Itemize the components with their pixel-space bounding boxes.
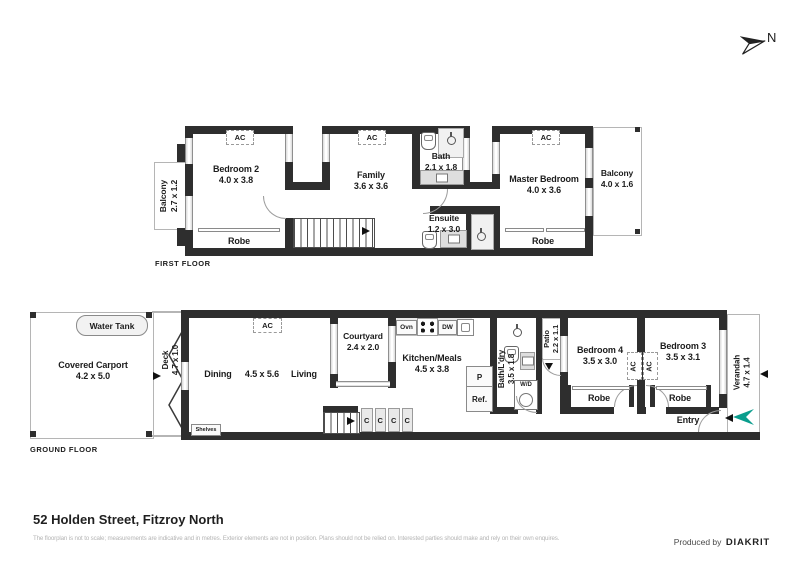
- shower-icon: [476, 228, 486, 240]
- cupboard: C: [402, 408, 414, 432]
- room-dims: 2.7 x 1.2: [169, 163, 180, 229]
- deck-edge: [152, 435, 181, 437]
- post: [30, 312, 36, 318]
- room-name: Kitchen/Meals: [394, 353, 470, 364]
- robe-sliding-door: [656, 386, 707, 390]
- wall: [185, 248, 593, 256]
- water-tank: Water Tank: [76, 315, 148, 336]
- robe-sliding-door: [546, 228, 585, 232]
- room-dims: 2.1 x 1.8: [413, 162, 469, 173]
- window: [336, 381, 390, 387]
- cupboard: C: [388, 408, 400, 432]
- post: [30, 431, 36, 437]
- room-name: Bath/L'dry: [497, 331, 507, 407]
- window: [322, 134, 330, 162]
- room-dims: 2.2 x 1.1: [551, 313, 560, 365]
- room-name: Bath: [413, 151, 469, 162]
- room-dims: 3.5 x 3.0: [563, 356, 637, 367]
- oven: Ovn: [396, 320, 417, 335]
- robe-label: Robe: [199, 236, 279, 247]
- post: [635, 229, 640, 234]
- ensuite-label: Ensuite 1.2 x 3.0: [414, 213, 474, 234]
- room-name: Courtyard: [336, 331, 390, 342]
- room-dims: 4.7 x 1.0: [171, 325, 181, 395]
- living-label: Living: [282, 369, 326, 380]
- master-bedroom-label: Master Bedroom 4.0 x 3.6: [500, 174, 588, 197]
- room-name: Patio: [542, 313, 551, 365]
- room-dims: 4.0 x 1.6: [597, 179, 637, 190]
- room-dims: 4.7 x 1.4: [743, 333, 753, 413]
- room-dims: 3.5 x 1.8: [507, 331, 517, 407]
- family-label: Family 3.6 x 3.6: [329, 170, 413, 193]
- shelves: Shelves: [191, 424, 221, 436]
- stairs-direction-arrow: [347, 417, 355, 425]
- wall: [181, 390, 189, 440]
- room-name: Ensuite: [414, 213, 474, 224]
- wall: [637, 407, 646, 414]
- post: [635, 127, 640, 132]
- living-dims-label: 4.5 x 5.6: [240, 369, 284, 380]
- window: [181, 362, 189, 390]
- vanity-icon: [520, 352, 535, 370]
- window: [285, 134, 293, 162]
- room-dims: 4.5 x 3.8: [394, 364, 470, 375]
- wall: [177, 228, 185, 246]
- disclaimer-text: The floorplan is not to scale; measureme…: [33, 535, 559, 542]
- cooktop-icon: [417, 318, 438, 336]
- verandah-arrow: [760, 370, 768, 378]
- room-dims: 2.4 x 2.0: [336, 342, 390, 353]
- window: [185, 138, 193, 164]
- entry-label: Entry: [666, 415, 710, 426]
- pantry: P: [466, 366, 493, 388]
- bedroom2-label: Bedroom 2 4.0 x 3.8: [193, 164, 279, 187]
- dining-label: Dining: [196, 369, 240, 380]
- room-dims: 3.6 x 3.6: [329, 181, 413, 192]
- carport-label: Covered Carport 4.2 x 5.0: [53, 360, 133, 383]
- robe-label: Robe: [512, 236, 574, 247]
- produced-by: Produced by DIAKRIT: [610, 532, 770, 550]
- produced-by-label: Produced by: [674, 537, 722, 547]
- balcony-right-label: Balcony 4.0 x 1.6: [597, 168, 637, 189]
- robe-sliding-door: [505, 228, 544, 232]
- wall: [285, 218, 293, 256]
- wall: [181, 310, 189, 362]
- wall: [181, 310, 727, 318]
- robe-sliding-door: [572, 386, 630, 390]
- cupboards: C C C C: [361, 408, 413, 432]
- room-dims: 1.2 x 3.0: [414, 224, 474, 235]
- wall: [285, 182, 330, 190]
- room-name: Bedroom 3: [645, 341, 721, 352]
- room-name: Bedroom 4: [563, 345, 637, 356]
- wall: [560, 407, 614, 414]
- verandah-label: Verandah 4.7 x 1.4: [733, 333, 752, 413]
- sink-icon: [457, 319, 474, 336]
- dishwasher: DW: [438, 320, 457, 335]
- room-name: Balcony: [158, 163, 169, 229]
- robe-label: Robe: [652, 393, 708, 404]
- room-dims: 4.0 x 3.6: [500, 185, 588, 196]
- vanity-icon: [420, 170, 464, 185]
- north-arrow-icon: [740, 31, 766, 55]
- ac-unit: AC: [532, 130, 560, 145]
- carport-entry-arrow: [153, 372, 161, 380]
- room-name: Master Bedroom: [500, 174, 588, 185]
- north-label: N: [767, 30, 776, 45]
- wall: [181, 432, 760, 440]
- room-dims: 4.2 x 5.0: [53, 371, 133, 382]
- robe-label: Robe: [570, 393, 628, 404]
- cupboard: C: [361, 408, 373, 432]
- toilet-icon: [421, 132, 436, 150]
- room-name: Bedroom 2: [193, 164, 279, 175]
- bath-label: Bath 2.1 x 1.8: [413, 151, 469, 172]
- deck-edge: [152, 311, 181, 313]
- door-arc: [516, 396, 537, 413]
- floorplan-page: N AC AC AC Robe Ro: [0, 0, 800, 566]
- window: [185, 196, 193, 230]
- page-title: 52 Holden Street, Fitzroy North: [33, 512, 224, 527]
- courtyard-label: Courtyard 2.4 x 2.0: [336, 331, 390, 352]
- kitchen-label: Kitchen/Meals 4.5 x 3.8: [394, 353, 470, 376]
- window: [492, 142, 500, 174]
- room-name: Covered Carport: [53, 360, 133, 371]
- stairs-direction-arrow: [362, 227, 370, 235]
- balcony-left-label: Balcony 2.7 x 1.2: [158, 163, 178, 229]
- room-dims: 3.5 x 3.1: [645, 352, 721, 363]
- room-name: Family: [329, 170, 413, 181]
- room-name: Deck: [161, 325, 171, 395]
- ground-floor-label: GROUND FLOOR: [30, 445, 98, 454]
- wall: [177, 144, 185, 162]
- shower-icon: [446, 132, 456, 144]
- ac-unit: AC: [253, 318, 282, 333]
- cupboard: C: [375, 408, 387, 432]
- bath-laundry-label: Bath/L'dry 3.5 x 1.8: [497, 331, 515, 407]
- first-floor-label: FIRST FLOOR: [155, 259, 211, 268]
- door-arc: [263, 196, 286, 219]
- ac-unit: AC: [358, 130, 386, 145]
- deck-label: Deck 4.7 x 1.0: [161, 325, 181, 395]
- room-name: Balcony: [597, 168, 637, 179]
- robe-sliding-door: [198, 228, 280, 232]
- patio-label: Patio 2.2 x 1.1: [542, 313, 558, 365]
- fridge: Ref.: [466, 386, 493, 412]
- room-name: Verandah: [733, 333, 743, 413]
- bedroom4-label: Bedroom 4 3.5 x 3.0: [563, 345, 637, 368]
- ac-unit: AC: [226, 130, 254, 145]
- bedroom3-label: Bedroom 3 3.5 x 3.1: [645, 341, 721, 364]
- room-dims: 4.0 x 3.8: [193, 175, 279, 186]
- diakrit-brand: DIAKRIT: [726, 537, 770, 548]
- washer-label: W/D: [520, 382, 532, 388]
